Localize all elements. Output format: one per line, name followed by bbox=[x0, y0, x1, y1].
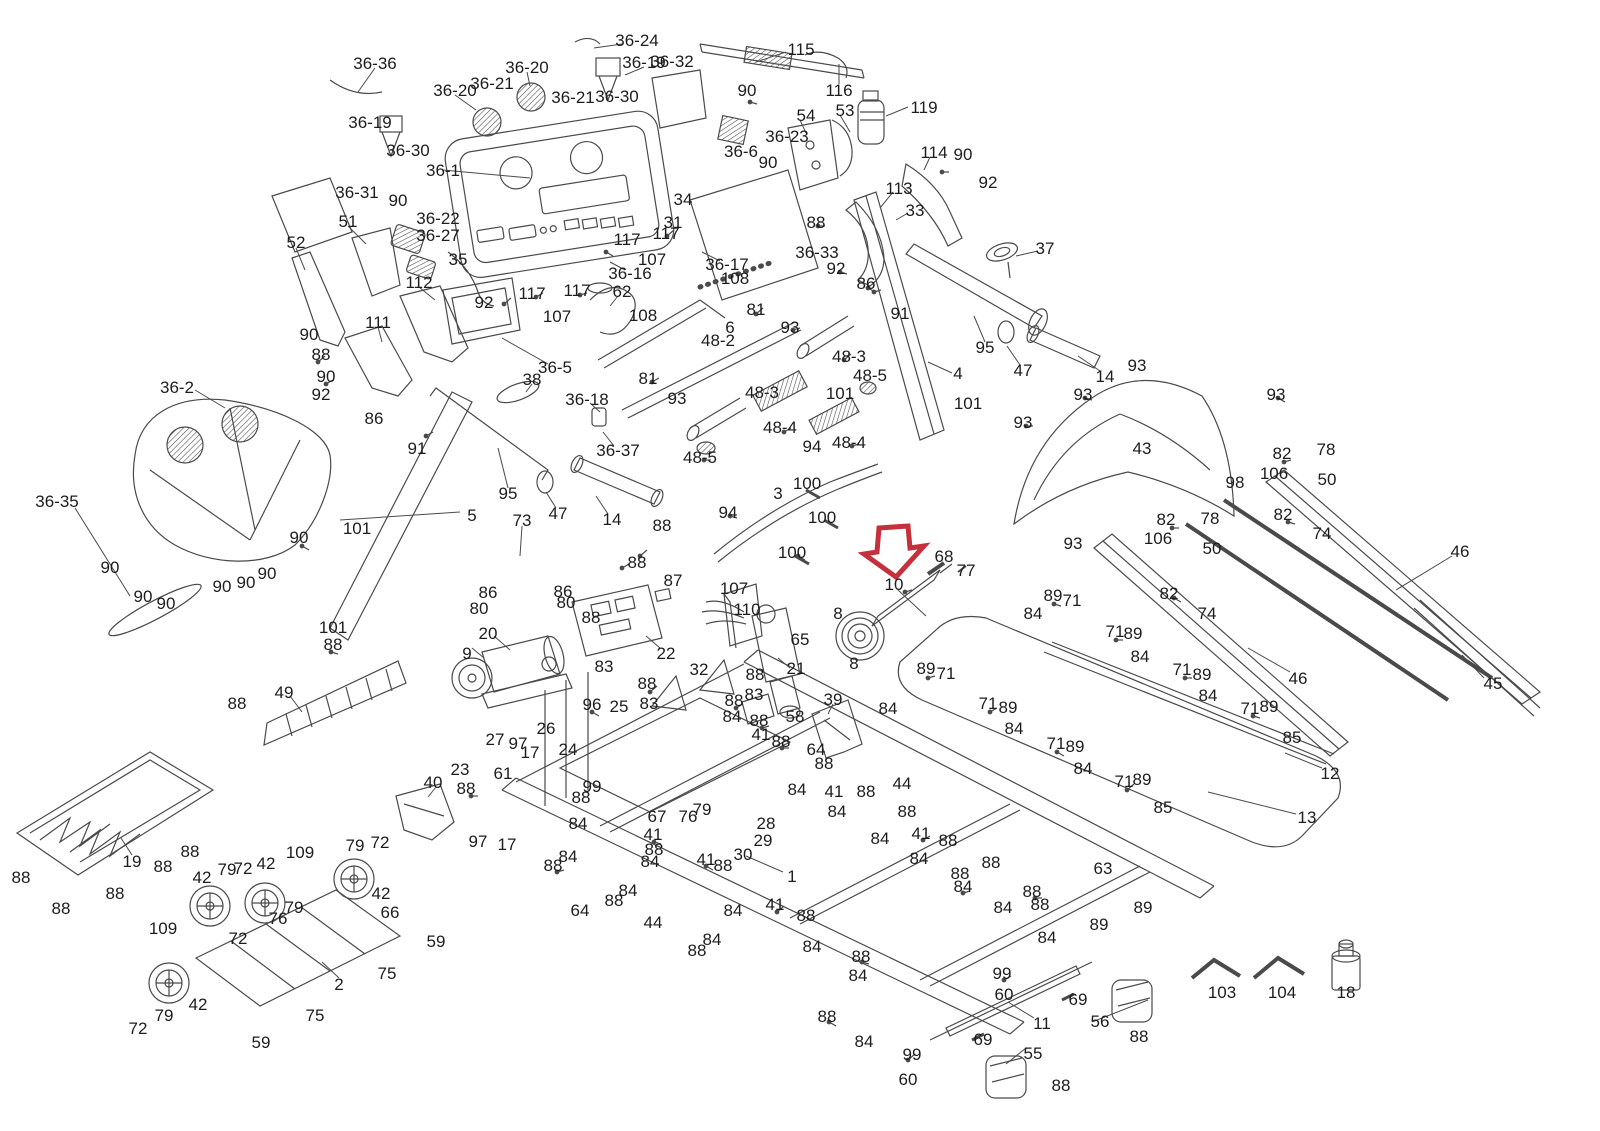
part-label: 86 bbox=[857, 274, 876, 293]
part-label: 88 bbox=[1130, 1027, 1149, 1046]
part-label: 84 bbox=[1131, 647, 1150, 666]
part-label: 9 bbox=[462, 644, 471, 663]
part-label: 84 bbox=[703, 930, 722, 949]
part-label: 88 bbox=[1031, 895, 1050, 914]
part-label: 84 bbox=[910, 849, 929, 868]
part-label: 94 bbox=[719, 503, 738, 522]
part-label: 92 bbox=[312, 385, 331, 404]
part-label: 112 bbox=[405, 273, 432, 292]
part-label: 88 bbox=[772, 732, 791, 751]
part-label: 42 bbox=[189, 995, 208, 1014]
part-label: 3 bbox=[773, 484, 782, 503]
part-label: 19 bbox=[123, 852, 142, 871]
part-label: 84 bbox=[828, 802, 847, 821]
part-label: 69 bbox=[974, 1030, 993, 1049]
part-label: 93 bbox=[1267, 385, 1286, 404]
part-label: 84 bbox=[1024, 604, 1043, 623]
part-label: 117 bbox=[563, 281, 590, 300]
part-label: 86 bbox=[365, 409, 384, 428]
part-label: 88 bbox=[852, 947, 871, 966]
parts-diagram-page: 36-2436-3636-2036-1936-3211536-2136-2036… bbox=[0, 0, 1600, 1131]
part-label: 36-1 bbox=[426, 161, 460, 180]
part-label: 4 bbox=[953, 364, 962, 383]
part-label: 17 bbox=[498, 835, 517, 854]
part-label: 12 bbox=[1321, 764, 1340, 783]
part-label: 75 bbox=[306, 1006, 325, 1025]
part-label: 84 bbox=[1074, 759, 1093, 778]
part-label: 78 bbox=[1201, 509, 1220, 528]
part-label: 115 bbox=[787, 40, 814, 59]
part-label: 11 bbox=[1033, 1014, 1051, 1033]
part-label: 96 bbox=[583, 695, 602, 714]
part-label: 29 bbox=[754, 831, 773, 850]
part-label: 36-2 bbox=[160, 378, 194, 397]
part-label: 100 bbox=[808, 508, 836, 527]
leader-line bbox=[520, 526, 522, 556]
part-label: 69 bbox=[1069, 990, 1088, 1009]
part-label: 74 bbox=[1198, 604, 1217, 623]
part-label: 38 bbox=[523, 370, 542, 389]
part-label: 84 bbox=[724, 901, 743, 920]
part-label: 36-24 bbox=[615, 31, 658, 50]
part-label: 104 bbox=[1268, 983, 1296, 1002]
part-label: 95 bbox=[976, 338, 995, 357]
part-label: 89 bbox=[1133, 770, 1152, 789]
part-label: 92 bbox=[979, 173, 998, 192]
part-label: 90 bbox=[954, 145, 973, 164]
part-label: 88 bbox=[312, 345, 331, 364]
part-label: 101 bbox=[954, 394, 982, 413]
part-label: 94 bbox=[803, 437, 822, 456]
part-label: 103 bbox=[1208, 983, 1236, 1002]
part-label: 62 bbox=[613, 282, 632, 301]
part-label: 36-31 bbox=[335, 183, 378, 202]
part-label: 80 bbox=[557, 593, 576, 612]
part-label: 83 bbox=[745, 685, 764, 704]
part-label: 67 bbox=[648, 807, 667, 826]
part-label: 84 bbox=[641, 852, 660, 871]
part-label: 36-20 bbox=[433, 81, 476, 100]
part-label: 79 bbox=[693, 800, 712, 819]
part-label: 44 bbox=[893, 774, 912, 793]
part-label: 93 bbox=[1128, 356, 1147, 375]
part-label: 88 bbox=[797, 906, 816, 925]
part-label: 36-30 bbox=[595, 87, 638, 106]
part-label: 84 bbox=[619, 881, 638, 900]
part-label: 77 bbox=[957, 561, 976, 580]
part-label: 90 bbox=[759, 153, 778, 172]
part-label: 59 bbox=[252, 1033, 271, 1052]
part-label: 88 bbox=[324, 635, 343, 654]
part-label: 48-3 bbox=[745, 383, 779, 402]
part-label: 36-35 bbox=[35, 492, 78, 511]
part-label: 72 bbox=[129, 1019, 148, 1038]
part-label: 36-32 bbox=[650, 52, 693, 71]
leader-line bbox=[886, 107, 908, 116]
part-label: 42 bbox=[372, 884, 391, 903]
part-label: 39 bbox=[824, 690, 843, 709]
part-label: 90 bbox=[157, 594, 176, 613]
part-label: 22 bbox=[657, 644, 676, 663]
part-label: 88 bbox=[628, 553, 647, 572]
part-label: 40 bbox=[424, 773, 443, 792]
part-label: 117 bbox=[518, 284, 545, 303]
part-label: 89 bbox=[1134, 898, 1153, 917]
part-label: 84 bbox=[788, 780, 807, 799]
part-label: 84 bbox=[1038, 928, 1057, 947]
part-label: 93 bbox=[1074, 385, 1093, 404]
part-label: 66 bbox=[381, 903, 400, 922]
part-label: 10 bbox=[885, 575, 904, 594]
part-label: 18 bbox=[1337, 983, 1356, 1002]
part-label: 37 bbox=[1036, 239, 1055, 258]
part-label: 71 bbox=[979, 694, 998, 713]
part-label: 88 bbox=[807, 213, 826, 232]
part-label: 48-4 bbox=[832, 433, 866, 452]
part-label: 93 bbox=[781, 318, 800, 337]
part-label: 71 bbox=[1115, 772, 1134, 791]
part-label: 117 bbox=[613, 230, 640, 249]
part-label: 17 bbox=[521, 743, 540, 762]
leader-line bbox=[928, 362, 952, 373]
part-label: 48-2 bbox=[701, 331, 735, 350]
part-label: 71 bbox=[1047, 734, 1066, 753]
part-label: 36-19 bbox=[348, 113, 391, 132]
part-label: 88 bbox=[857, 782, 876, 801]
part-label: 72 bbox=[229, 929, 248, 948]
part-label: 61 bbox=[494, 764, 513, 783]
part-label: 84 bbox=[871, 829, 890, 848]
part-label: 88 bbox=[714, 856, 733, 875]
part-label: 88 bbox=[228, 694, 247, 713]
part-label: 88 bbox=[582, 608, 601, 627]
part-label: 89 bbox=[1260, 697, 1279, 716]
part-label: 56 bbox=[1091, 1012, 1110, 1031]
part-label: 90 bbox=[317, 367, 336, 386]
part-label: 84 bbox=[1005, 719, 1024, 738]
part-label: 36-30 bbox=[386, 141, 429, 160]
part-label: 88 bbox=[746, 665, 765, 684]
part-label: 91 bbox=[408, 439, 427, 458]
part-label: 97 bbox=[469, 832, 488, 851]
part-label: 2 bbox=[334, 975, 343, 994]
part-label: 71 bbox=[1106, 622, 1125, 641]
part-label: 53 bbox=[836, 101, 855, 120]
part-label: 47 bbox=[549, 504, 568, 523]
part-label: 78 bbox=[1317, 440, 1336, 459]
part-label: 90 bbox=[101, 558, 120, 577]
part-label: 41 bbox=[912, 824, 931, 843]
part-label: 99 bbox=[903, 1045, 922, 1064]
part-label: 1 bbox=[787, 867, 796, 886]
part-label: 84 bbox=[994, 898, 1013, 917]
part-label: 48-5 bbox=[853, 366, 887, 385]
part-label: 89 bbox=[1066, 737, 1085, 756]
leader-line bbox=[1396, 556, 1452, 590]
part-label: 71 bbox=[1063, 591, 1082, 610]
part-label: 33 bbox=[906, 201, 925, 220]
part-label: 48-4 bbox=[763, 418, 797, 437]
part-label: 82 bbox=[1274, 505, 1293, 524]
part-label: 82 bbox=[1160, 584, 1179, 603]
part-label: 88 bbox=[815, 754, 834, 773]
part-label: 54 bbox=[797, 106, 816, 125]
part-label: 110 bbox=[733, 600, 760, 619]
part-label: 79 bbox=[155, 1006, 174, 1025]
part-label: 13 bbox=[1298, 808, 1317, 827]
leader-line bbox=[1462, 655, 1484, 678]
part-label: 82 bbox=[1157, 510, 1176, 529]
part-label: 93 bbox=[1064, 534, 1083, 553]
part-label: 88 bbox=[818, 1007, 837, 1026]
part-label: 109 bbox=[149, 919, 177, 938]
part-label: 72 bbox=[371, 833, 390, 852]
part-label: 71 bbox=[937, 664, 956, 683]
part-label: 88 bbox=[52, 899, 71, 918]
part-label: 63 bbox=[1094, 859, 1113, 878]
leader-line bbox=[75, 508, 130, 596]
part-label: 41 bbox=[766, 895, 785, 914]
part-label: 106 bbox=[1260, 464, 1288, 483]
part-label: 92 bbox=[475, 293, 494, 312]
part-label: 90 bbox=[258, 564, 277, 583]
part-label: 26 bbox=[537, 719, 556, 738]
part-label: 89 bbox=[1044, 586, 1063, 605]
part-label: 34 bbox=[674, 190, 693, 209]
part-label: 71 bbox=[1173, 660, 1192, 679]
part-label: 48-5 bbox=[683, 448, 717, 467]
part-label: 68 bbox=[935, 547, 954, 566]
part-label: 106 bbox=[1144, 529, 1172, 548]
part-label: 90 bbox=[237, 573, 256, 592]
part-label: 65 bbox=[791, 630, 810, 649]
part-label: 90 bbox=[738, 81, 757, 100]
part-label: 76 bbox=[269, 909, 288, 928]
part-label: 35 bbox=[449, 250, 468, 269]
part-label: 101 bbox=[343, 519, 371, 538]
part-label: 111 bbox=[365, 313, 391, 332]
part-label: 83 bbox=[595, 657, 614, 676]
part-label: 59 bbox=[427, 932, 446, 951]
part-label: 107 bbox=[543, 307, 571, 326]
part-label: 89 bbox=[999, 698, 1018, 717]
part-label: 23 bbox=[451, 760, 470, 779]
part-label: 41 bbox=[825, 782, 844, 801]
part-label: 32 bbox=[690, 660, 709, 679]
part-label: 84 bbox=[559, 847, 578, 866]
part-label: 89 bbox=[1090, 915, 1109, 934]
part-label: 100 bbox=[793, 474, 821, 493]
part-label: 84 bbox=[855, 1032, 874, 1051]
highlight-arrow-icon bbox=[864, 526, 924, 577]
part-label: 36-6 bbox=[724, 142, 758, 161]
part-label: 90 bbox=[134, 587, 153, 606]
part-label: 108 bbox=[721, 269, 749, 288]
part-label: 88 bbox=[572, 788, 591, 807]
part-label: 14 bbox=[603, 510, 622, 529]
part-label: 99 bbox=[993, 964, 1012, 983]
part-label: 74 bbox=[1313, 524, 1332, 543]
part-label: 84 bbox=[954, 877, 973, 896]
part-label: 21 bbox=[787, 659, 806, 678]
part-label: 47 bbox=[1014, 361, 1033, 380]
part-label: 84 bbox=[569, 814, 588, 833]
part-label: 107 bbox=[720, 579, 748, 598]
part-label: 84 bbox=[1199, 686, 1218, 705]
part-label: 108 bbox=[629, 306, 657, 325]
part-label: 27 bbox=[486, 730, 505, 749]
part-label: 100 bbox=[778, 543, 806, 562]
part-label: 117 bbox=[652, 224, 679, 243]
part-label: 73 bbox=[513, 511, 532, 530]
part-label: 36-16 bbox=[608, 264, 651, 283]
part-label: 44 bbox=[644, 913, 663, 932]
part-label: 81 bbox=[747, 300, 766, 319]
leader-line bbox=[1208, 792, 1296, 814]
part-label: 109 bbox=[286, 843, 314, 862]
part-label: 98 bbox=[1226, 473, 1245, 492]
part-label: 88 bbox=[457, 779, 476, 798]
part-label: 60 bbox=[995, 985, 1014, 1004]
part-label: 82 bbox=[1273, 444, 1292, 463]
part-label: 84 bbox=[803, 937, 822, 956]
part-label: 49 bbox=[275, 683, 294, 702]
part-label: 88 bbox=[1052, 1076, 1071, 1095]
part-label: 89 bbox=[1124, 624, 1143, 643]
part-label: 95 bbox=[499, 484, 518, 503]
part-label: 41 bbox=[752, 725, 771, 744]
part-label: 114 bbox=[920, 143, 947, 162]
part-label: 89 bbox=[917, 659, 936, 678]
part-label: 48-3 bbox=[832, 347, 866, 366]
part-label: 20 bbox=[479, 624, 498, 643]
part-label: 51 bbox=[339, 212, 358, 231]
part-label: 90 bbox=[290, 528, 309, 547]
part-label: 52 bbox=[287, 233, 306, 252]
part-label: 85 bbox=[1283, 728, 1302, 747]
part-label: 36-21 bbox=[551, 88, 594, 107]
part-label: 8 bbox=[833, 604, 842, 623]
part-label: 30 bbox=[734, 845, 753, 864]
part-label: 72 bbox=[234, 859, 253, 878]
part-label: 85 bbox=[1154, 798, 1173, 817]
part-label: 36-37 bbox=[596, 441, 639, 460]
part-label: 113 bbox=[885, 179, 912, 198]
part-label: 90 bbox=[213, 577, 232, 596]
part-label: 42 bbox=[257, 854, 276, 873]
part-label: 36-5 bbox=[538, 358, 572, 377]
part-label: 71 bbox=[1241, 699, 1260, 718]
part-label: 36-33 bbox=[795, 243, 838, 262]
parts-diagram: 36-2436-3636-2036-1936-3211536-2136-2036… bbox=[0, 0, 1600, 1131]
part-label: 88 bbox=[898, 802, 917, 821]
part-label: 101 bbox=[826, 384, 854, 403]
part-label: 90 bbox=[300, 325, 319, 344]
part-label: 88 bbox=[154, 857, 173, 876]
part-label: 50 bbox=[1203, 539, 1222, 558]
part-label: 119 bbox=[910, 98, 937, 117]
part-label: 60 bbox=[899, 1070, 918, 1089]
part-label: 88 bbox=[181, 842, 200, 861]
part-label: 93 bbox=[1014, 413, 1033, 432]
part-label: 88 bbox=[939, 831, 958, 850]
leader-line bbox=[498, 448, 508, 488]
part-labels: 36-2436-3636-2036-1936-3211536-2136-2036… bbox=[12, 31, 1503, 1095]
part-label: 42 bbox=[193, 868, 212, 887]
part-label: 64 bbox=[571, 901, 590, 920]
part-label: 90 bbox=[389, 191, 408, 210]
part-label: 83 bbox=[640, 694, 659, 713]
part-label: 87 bbox=[664, 571, 683, 590]
part-label: 55 bbox=[1024, 1044, 1043, 1063]
part-label: 81 bbox=[639, 369, 658, 388]
part-label: 5 bbox=[467, 506, 476, 525]
part-label: 36-23 bbox=[765, 127, 808, 146]
leader-line bbox=[195, 390, 225, 408]
part-label: 79 bbox=[346, 836, 365, 855]
part-label: 36-18 bbox=[565, 390, 608, 409]
part-label: 24 bbox=[559, 740, 578, 759]
part-label: 89 bbox=[1193, 665, 1212, 684]
part-label: 46 bbox=[1451, 542, 1470, 561]
part-label: 84 bbox=[723, 707, 742, 726]
part-label: 88 bbox=[12, 868, 31, 887]
part-label: 84 bbox=[879, 699, 898, 718]
part-label: 36-21 bbox=[470, 74, 513, 93]
part-label: 8 bbox=[849, 654, 858, 673]
part-label: 36-27 bbox=[416, 226, 459, 245]
part-label: 50 bbox=[1318, 470, 1337, 489]
part-label: 43 bbox=[1133, 439, 1152, 458]
part-label: 75 bbox=[378, 964, 397, 983]
part-label: 88 bbox=[982, 853, 1001, 872]
part-label: 80 bbox=[470, 599, 489, 618]
part-label: 14 bbox=[1096, 367, 1115, 386]
part-label: 91 bbox=[891, 304, 910, 323]
part-label: 88 bbox=[638, 674, 657, 693]
part-label: 88 bbox=[106, 884, 125, 903]
part-label: 116 bbox=[825, 81, 852, 100]
part-label: 58 bbox=[786, 707, 805, 726]
part-label: 88 bbox=[653, 516, 672, 535]
part-label: 45 bbox=[1484, 674, 1503, 693]
part-label: 46 bbox=[1289, 669, 1308, 688]
part-label: 93 bbox=[668, 389, 687, 408]
part-label: 84 bbox=[849, 966, 868, 985]
part-label: 25 bbox=[610, 697, 629, 716]
part-label: 36-36 bbox=[353, 54, 396, 73]
